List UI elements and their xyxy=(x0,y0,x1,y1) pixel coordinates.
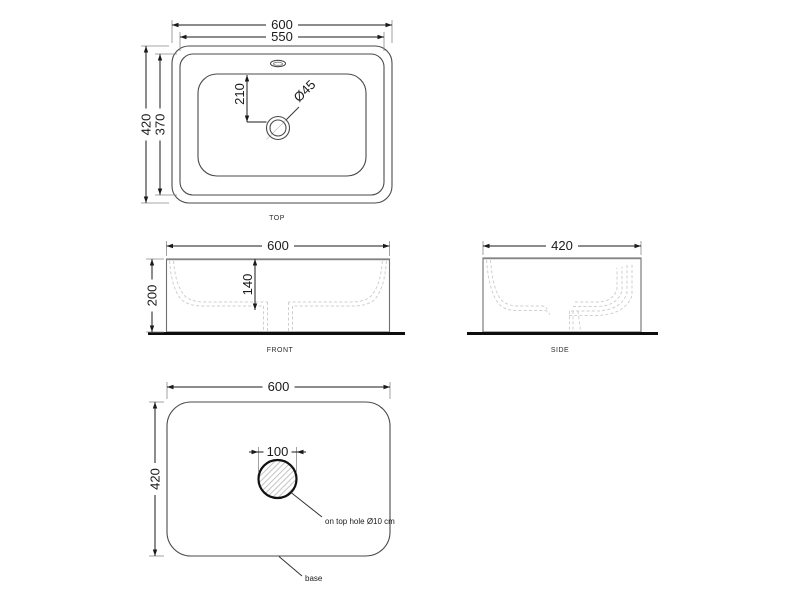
top-dim-inner-width-value: 550 xyxy=(271,29,293,44)
front-dim-width-value: 600 xyxy=(267,238,289,253)
top-dim-drain-offset: 210 xyxy=(232,75,267,122)
base-dim-depth: 420 xyxy=(148,402,165,556)
washbasin-drawing-canvas: 600 550 420 370 xyxy=(0,0,800,600)
top-view: 600 550 420 370 xyxy=(139,17,393,222)
base-hole-note: on top hole Ø10 cm xyxy=(325,517,395,526)
front-view-label: FRONT xyxy=(267,347,294,354)
top-drain-diameter-callout: Ø45 xyxy=(287,77,319,120)
front-dim-height: 200 xyxy=(145,259,165,332)
front-view-body xyxy=(167,259,390,332)
base-hole-note-callout: on top hole Ø10 cm xyxy=(291,493,395,527)
top-dim-outer-depth-value: 420 xyxy=(139,114,154,136)
top-dim-drain-offset-value: 210 xyxy=(232,83,247,105)
top-drain-diameter-value: Ø45 xyxy=(291,77,319,105)
top-view-label: TOP xyxy=(269,215,285,222)
technical-drawing-sheet: 600 550 420 370 xyxy=(0,0,800,600)
side-hidden-lines xyxy=(487,260,633,331)
top-dim-inner-depth-value: 370 xyxy=(153,114,168,136)
base-drain-hole xyxy=(259,460,297,498)
side-view-label: SIDE xyxy=(551,347,569,354)
base-dim-width: 600 xyxy=(167,379,390,399)
side-dim-depth-value: 420 xyxy=(551,238,573,253)
front-dim-height-value: 200 xyxy=(145,285,160,307)
base-view: 600 420 100 on top hole Ø10 c xyxy=(148,379,396,583)
top-dim-inner-depth: 370 xyxy=(153,54,178,195)
front-dim-width: 600 xyxy=(167,238,390,256)
top-view-basin-edge xyxy=(198,74,366,176)
front-dim-basin-depth-value: 140 xyxy=(240,274,255,296)
side-view: 420 SIDE xyxy=(467,238,658,354)
top-dim-inner-width: 550 xyxy=(180,29,384,51)
base-label-callout: base xyxy=(279,557,323,584)
drain-hole xyxy=(267,116,291,140)
overflow-hole xyxy=(271,60,286,66)
front-hidden-lines xyxy=(170,261,387,331)
base-dim-depth-value: 420 xyxy=(148,468,163,490)
base-dim-width-value: 600 xyxy=(268,379,290,394)
base-dim-hole-width-value: 100 xyxy=(267,444,289,459)
base-label: base xyxy=(305,574,323,583)
side-dim-depth: 420 xyxy=(483,238,641,255)
front-view: 600 200 140 FRONT xyxy=(145,238,406,354)
